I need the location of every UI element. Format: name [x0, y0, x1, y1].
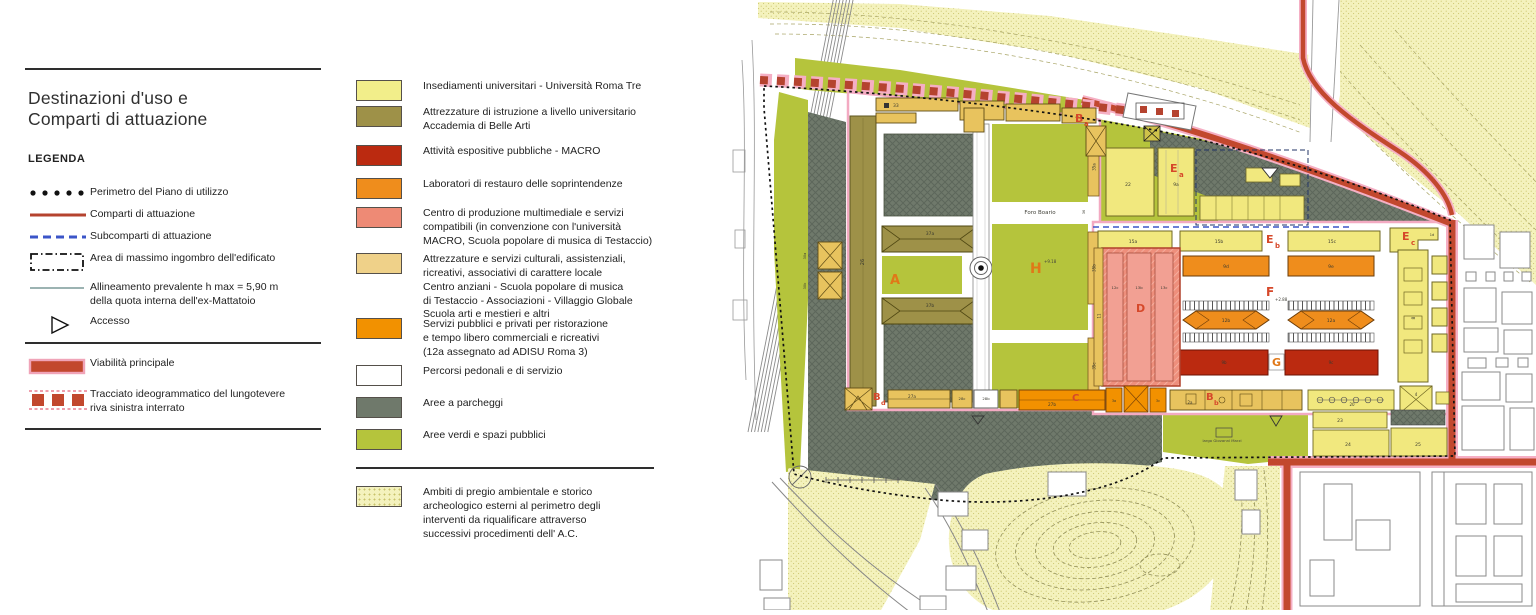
legend-item-tracciato: Tracciato ideogrammatico del lungotevere…	[28, 388, 348, 417]
legend-item-accesso: Accesso	[28, 315, 348, 340]
color-swatch	[356, 106, 402, 127]
red-dashed-squares-symbol	[28, 388, 90, 417]
label-33: 33	[893, 103, 899, 109]
label-comparto-G: G	[1272, 356, 1281, 369]
page-title-line2: Comparti di attuazione	[28, 109, 208, 130]
label-25: 25	[1415, 442, 1421, 448]
label-largo: largo Giovanni Marzi	[1203, 438, 1242, 443]
label-4: 4	[1415, 392, 1418, 397]
legend-item-culturali: Attrezzature e servizi culturali, assist…	[356, 253, 686, 322]
legend-item-label: Subcomparti di attuazione	[90, 230, 211, 244]
color-swatch	[356, 145, 402, 166]
label-36: 36	[1082, 210, 1086, 214]
label-3a: 3a	[1112, 399, 1116, 403]
label-comparto-Bb-sub: b	[1214, 399, 1219, 407]
label-comparto-B: B	[1075, 112, 1083, 125]
label-comparto-Ec-sub: c	[1411, 239, 1415, 247]
legend-item-perimetro: Perimetro del Piano di utilizzo	[28, 186, 348, 205]
label-37b: 37b	[926, 303, 935, 309]
legend-item-label: Attrezzature e servizi culturali, assist…	[423, 253, 633, 322]
legend-item-label: Perimetro del Piano di utilizzo	[90, 186, 228, 200]
label-13b: 13b	[1135, 285, 1143, 290]
label-comparto-Bd-sub: d	[881, 399, 886, 407]
red-road-symbol	[28, 357, 90, 382]
label-22: 22	[1125, 182, 1131, 188]
legend-item-label: Tracciato ideogrammatico del lungotevere…	[90, 388, 285, 416]
color-swatch	[356, 318, 402, 339]
thin-line-symbol	[28, 281, 90, 300]
divider	[25, 428, 321, 430]
blue-dashed-line-symbol	[28, 230, 90, 249]
legend-item-label: Allineamento prevalente h max = 5,90 m d…	[90, 281, 278, 309]
multimedia-zone	[1094, 248, 1180, 386]
label-comparto-Bb: B	[1206, 392, 1214, 403]
label-comparto-A: A	[890, 273, 900, 288]
label-comparto-B-sub: a	[1084, 120, 1089, 128]
color-swatch	[356, 80, 402, 101]
legend-item-viabilita: Viabilità principale	[28, 357, 348, 382]
legend-item-label: Accesso	[90, 315, 130, 329]
color-swatch	[356, 365, 402, 386]
legend-item-label: Centro di produzione multimediale e serv…	[423, 207, 652, 249]
legend-item-laboratori: Laboratori di restauro delle soprintende…	[356, 178, 686, 199]
divider	[25, 68, 321, 70]
label-28c: 28c	[959, 396, 966, 401]
legend-panel: Destinazioni d'uso e Comparti di attuazi…	[0, 0, 730, 610]
label-comparto-C: C	[1072, 393, 1079, 404]
label-15c: 15c	[1328, 239, 1337, 245]
legend-item-label: Viabilità principale	[90, 357, 174, 371]
label-3c: 3c	[1156, 399, 1160, 403]
color-swatch	[356, 207, 402, 228]
label-24: 24	[1345, 442, 1351, 448]
label-15a: 15a	[1129, 239, 1138, 245]
legend-item-verdi: Aree verdi e spazi pubblici	[356, 429, 686, 450]
legend-item-macro: Attività espositive pubbliche - MACRO	[356, 145, 686, 166]
legend-item-label: Insediamenti universitari - Università R…	[423, 80, 641, 94]
label-30a: 30a	[803, 253, 807, 260]
legend-item-servizi: Servizi pubblici e privati per ristorazi…	[356, 318, 686, 360]
page-title: Destinazioni d'uso e Comparti di attuazi…	[28, 88, 208, 131]
legend-item-label: Laboratori di restauro delle soprintende…	[423, 178, 623, 192]
label-elev-F: +2.88	[1275, 297, 1288, 302]
legend-item-comparti: Comparti di attuazione	[28, 208, 348, 227]
divider	[25, 342, 321, 344]
label-comparto-F: F	[1266, 285, 1274, 299]
hatched-swatch	[356, 486, 402, 507]
legend-item-label: Area di massimo ingombro dell'edificato	[90, 252, 275, 266]
label-comparto-E-sub: a	[1179, 171, 1184, 179]
label-comparto-E: E	[1170, 162, 1178, 175]
label-20: 20	[1349, 402, 1355, 407]
label-12a: 12a	[1327, 318, 1336, 324]
label-37a: 37a	[926, 231, 935, 237]
legend-item-label: Aree a parcheggi	[423, 397, 503, 411]
masterplan-map: Foro Boario largo Giovanni Marzi A H +9.…	[730, 0, 1536, 610]
color-swatch	[356, 429, 402, 450]
label-comparto-Eb: E	[1266, 233, 1274, 246]
legend-item-parcheggi: Aree a parcheggi	[356, 397, 686, 418]
divider	[356, 467, 654, 469]
dashdot-rect-symbol	[28, 252, 90, 277]
label-comparto-D: D	[1136, 302, 1145, 315]
label-35b: 35b	[1092, 264, 1097, 272]
legend-item-label: Servizi pubblici e privati per ristorazi…	[423, 318, 608, 360]
label-9d: 9d	[1223, 264, 1229, 270]
page-title-line1: Destinazioni d'uso e	[28, 88, 208, 109]
legend-item-allineamento: Allineamento prevalente h max = 5,90 m d…	[28, 281, 348, 309]
label-1d: 1d	[1430, 233, 1434, 237]
label-9a: 9a	[1173, 182, 1179, 188]
legend-item-label: Comparti di attuazione	[90, 208, 195, 222]
label-9b: 9b	[1221, 360, 1227, 365]
label-11: 11	[1097, 313, 1102, 319]
legend-item-label: Attrezzature di istruzione a livello uni…	[423, 106, 636, 134]
legend-item-universitari: Insediamenti universitari - Università R…	[356, 80, 686, 101]
legend-heading: LEGENDA	[28, 153, 85, 165]
legend-item-ambiti: Ambiti di pregio ambientale e storico ar…	[356, 486, 686, 541]
label-27a: 27a	[908, 394, 916, 399]
legend-item-label: Aree verdi e spazi pubblici	[423, 429, 546, 443]
legend-item-accademia: Attrezzature di istruzione a livello uni…	[356, 106, 686, 134]
color-swatch	[356, 397, 402, 418]
color-swatch	[356, 178, 402, 199]
legend-item-label: Attività espositive pubbliche - MACRO	[423, 145, 600, 159]
label-foro-boario: Foro Boario	[1024, 210, 1056, 216]
label-30b: 30b	[803, 282, 807, 289]
label-13c: 13c	[1161, 285, 1168, 290]
color-swatch	[356, 253, 402, 274]
label-comparto-H: H	[1030, 261, 1042, 277]
legend-item-label: Ambiti di pregio ambientale e storico ar…	[423, 486, 600, 541]
legend-item-percorsi: Percorsi pedonali e di servizio	[356, 365, 686, 386]
label-26: 26	[860, 259, 866, 265]
label-12b: 12b	[1222, 318, 1231, 324]
dotted-line-symbol	[28, 186, 90, 205]
legend-item-label: Percorsi pedonali e di servizio	[423, 365, 562, 379]
label-comparto-Eb-sub: b	[1275, 242, 1280, 250]
legend-item-multimediale: Centro di produzione multimediale e serv…	[356, 207, 686, 249]
label-elev-H: +9.18	[1044, 259, 1057, 264]
label-28b: 28b	[982, 396, 990, 401]
access-triangle-icon	[28, 315, 90, 340]
label-9e: 9e	[1328, 264, 1334, 270]
label-comparto-Ec: E	[1402, 230, 1410, 243]
red-line-symbol	[28, 208, 90, 227]
label-comparto-Bd: B	[873, 392, 881, 403]
label-23: 23	[1337, 418, 1343, 424]
label-35c: 35c	[1092, 362, 1097, 369]
label-15b: 15b	[1215, 239, 1224, 245]
legend-item-subcomparti: Subcomparti di attuazione	[28, 230, 348, 249]
label-2a: 2a	[1188, 400, 1194, 405]
label-8: 8	[1411, 316, 1417, 319]
label-9c: 9c	[1329, 360, 1334, 365]
label-27b: 27b	[1048, 402, 1056, 407]
label-12c: 12c	[1112, 285, 1119, 290]
legend-item-ingombro: Area di massimo ingombro dell'edificato	[28, 252, 348, 277]
label-35a: 35a	[1092, 163, 1097, 171]
